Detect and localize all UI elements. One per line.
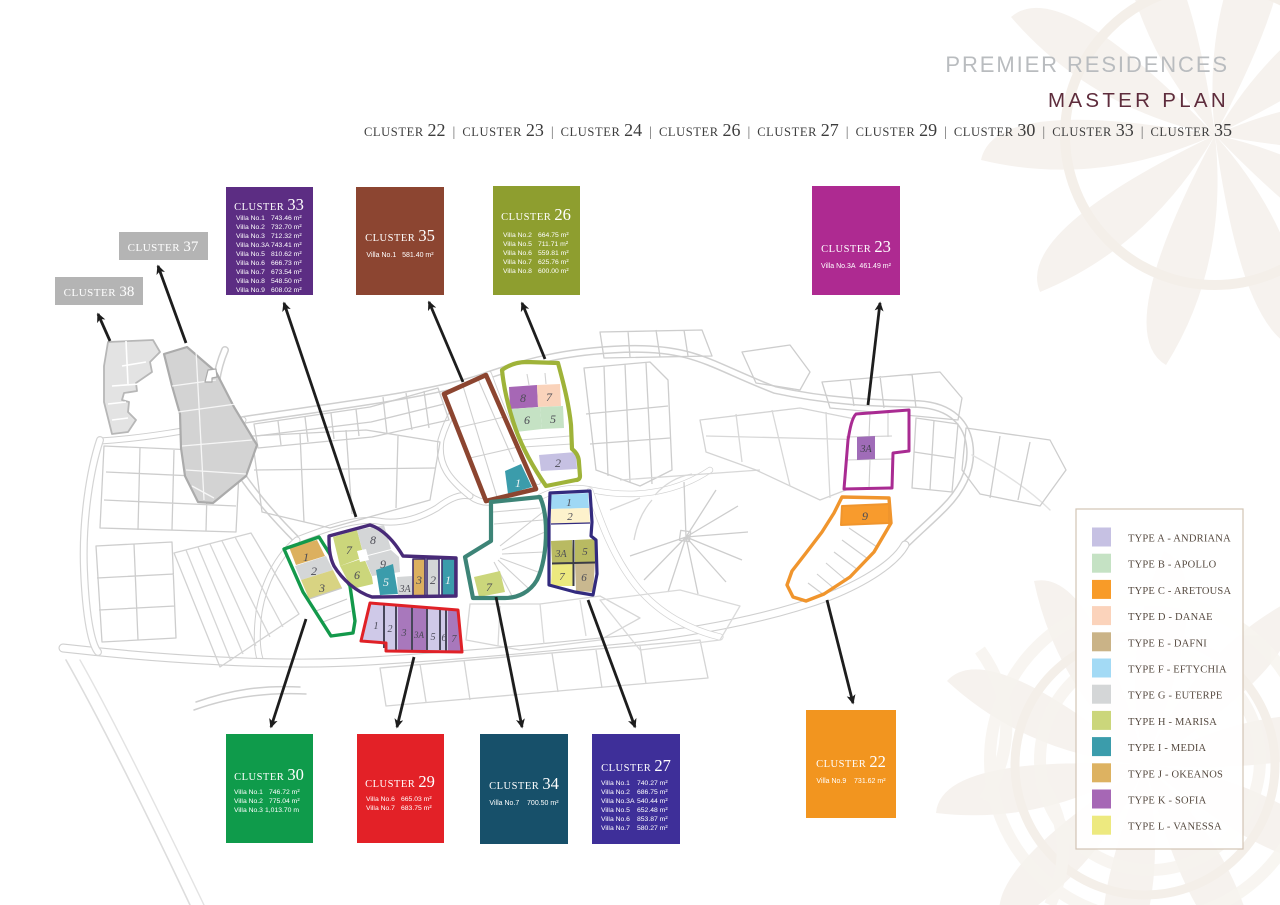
svg-text:5: 5 (582, 546, 588, 558)
svg-text:TYPE H - MARISA: TYPE H - MARISA (1128, 717, 1217, 728)
svg-text:Villa No.5: Villa No.5 (503, 241, 532, 248)
svg-text:TYPE B - APOLLO: TYPE B - APOLLO (1128, 560, 1217, 571)
svg-text:625.76 m²: 625.76 m² (538, 259, 569, 266)
svg-text:666.73 m²: 666.73 m² (271, 260, 302, 267)
svg-text:Villa No.6: Villa No.6 (503, 250, 532, 257)
svg-text:Villa No.7: Villa No.7 (503, 259, 532, 266)
svg-text:TYPE L - VANESSA: TYPE L - VANESSA (1128, 822, 1222, 833)
svg-text:Villa No.1: Villa No.1 (601, 780, 630, 787)
svg-text:TYPE G - EUTERPE: TYPE G - EUTERPE (1128, 691, 1223, 702)
svg-text:652.48 m²: 652.48 m² (637, 807, 668, 814)
svg-text:7: 7 (346, 543, 353, 557)
svg-text:600.00 m²: 600.00 m² (538, 268, 569, 275)
svg-text:TYPE E - DAFNI: TYPE E - DAFNI (1128, 638, 1207, 649)
svg-text:CLUSTER 38: CLUSTER 38 (64, 284, 135, 300)
svg-text:9: 9 (862, 509, 868, 523)
svg-text:Villa No.1: Villa No.1 (234, 789, 263, 796)
svg-text:Villa No.6: Villa No.6 (366, 796, 395, 803)
svg-text:3A: 3A (554, 549, 567, 560)
svg-text:Villa No.3: Villa No.3 (234, 807, 263, 814)
svg-text:2: 2 (430, 573, 436, 587)
svg-text:6: 6 (524, 413, 530, 427)
svg-text:746.72 m²: 746.72 m² (269, 789, 300, 796)
svg-text:Villa No.3A: Villa No.3A (601, 798, 635, 805)
svg-text:559.81 m²: 559.81 m² (538, 250, 569, 257)
svg-text:3A: 3A (398, 584, 411, 595)
svg-text:TYPE C - ARETOUSA: TYPE C - ARETOUSA (1128, 586, 1231, 597)
svg-text:Villa No.2: Villa No.2 (236, 224, 265, 231)
svg-text:Villa No.6: Villa No.6 (601, 816, 630, 823)
svg-text:3A: 3A (413, 630, 425, 640)
svg-text:7: 7 (559, 571, 565, 583)
svg-text:Villa No.1: Villa No.1 (236, 215, 265, 222)
svg-text:608.02 m²: 608.02 m² (271, 287, 302, 294)
svg-text:Villa No.2: Villa No.2 (234, 798, 263, 805)
svg-text:1,013.70 m: 1,013.70 m (265, 807, 299, 814)
svg-text:CLUSTER 37: CLUSTER 37 (128, 239, 199, 255)
svg-text:Villa No.1 581.40 m²: Villa No.1 581.40 m² (366, 252, 434, 259)
svg-text:Villa No.5: Villa No.5 (236, 251, 265, 258)
svg-text:Villa No.9 731.62 m²: Villa No.9 731.62 m² (816, 778, 886, 785)
svg-text:5: 5 (431, 632, 436, 643)
svg-text:8: 8 (520, 391, 526, 405)
svg-text:Villa No.8: Villa No.8 (503, 268, 532, 275)
svg-text:6: 6 (442, 633, 447, 644)
svg-text:MASTER PLAN: MASTER PLAN (1048, 89, 1229, 112)
svg-text:TYPE D - DANAE: TYPE D - DANAE (1128, 612, 1213, 623)
svg-text:3A: 3A (859, 444, 872, 455)
svg-text:2: 2 (388, 624, 393, 635)
svg-text:683.75 m²: 683.75 m² (401, 805, 432, 812)
svg-text:PREMIER RESIDENCES: PREMIER RESIDENCES (945, 52, 1229, 77)
svg-text:TYPE I - MEDIA: TYPE I - MEDIA (1128, 743, 1207, 754)
svg-text:Villa No.9: Villa No.9 (236, 287, 265, 294)
svg-text:740.27 m²: 740.27 m² (637, 780, 668, 787)
svg-text:743.46 m²: 743.46 m² (271, 215, 302, 222)
svg-text:664.75 m²: 664.75 m² (538, 232, 569, 239)
svg-text:1: 1 (374, 621, 379, 632)
svg-text:Villa No.6: Villa No.6 (236, 260, 265, 267)
svg-text:Villa No.7: Villa No.7 (366, 805, 395, 812)
svg-text:TYPE A - ANDRIANA: TYPE A - ANDRIANA (1128, 534, 1231, 545)
svg-text:9: 9 (380, 557, 386, 571)
svg-text:Villa No.3A: Villa No.3A (236, 242, 270, 249)
svg-text:673.54 m²: 673.54 m² (271, 269, 302, 276)
svg-text:TYPE J - OKEANOS: TYPE J - OKEANOS (1128, 769, 1223, 780)
svg-text:6: 6 (354, 568, 360, 582)
svg-text:3: 3 (415, 573, 422, 587)
svg-text:1: 1 (515, 476, 521, 490)
svg-text:Villa No.3A 461.49 m²: Villa No.3A 461.49 m² (821, 263, 892, 270)
svg-text:2: 2 (555, 456, 561, 470)
svg-text:665.03 m²: 665.03 m² (401, 796, 432, 803)
svg-text:732.70 m²: 732.70 m² (271, 224, 302, 231)
svg-text:1: 1 (566, 497, 572, 509)
svg-text:1: 1 (303, 550, 309, 564)
svg-text:Villa No.7: Villa No.7 (236, 269, 265, 276)
svg-text:Villa No.7 700.50 m²: Villa No.7 700.50 m² (489, 800, 559, 807)
svg-text:775.04 m²: 775.04 m² (269, 798, 300, 805)
svg-text:TYPE F - EFTYCHIA: TYPE F - EFTYCHIA (1128, 665, 1227, 676)
svg-text:2: 2 (567, 511, 573, 523)
svg-text:743.41 m²: 743.41 m² (271, 242, 302, 249)
svg-text:Villa No.3: Villa No.3 (236, 233, 265, 240)
svg-text:1: 1 (445, 573, 451, 587)
svg-text:2: 2 (311, 564, 317, 578)
svg-text:6: 6 (581, 572, 587, 584)
svg-text:3: 3 (401, 628, 407, 639)
svg-text:3: 3 (318, 581, 325, 595)
svg-text:686.75 m²: 686.75 m² (637, 789, 668, 796)
svg-text:Villa No.7: Villa No.7 (601, 825, 630, 832)
svg-text:8: 8 (370, 533, 376, 547)
svg-text:Villa No.2: Villa No.2 (601, 789, 630, 796)
svg-text:712.32 m²: 712.32 m² (271, 233, 302, 240)
svg-text:5: 5 (383, 575, 389, 589)
svg-text:548.50 m²: 548.50 m² (271, 278, 302, 285)
svg-text:711.71 m²: 711.71 m² (538, 241, 569, 248)
svg-text:Villa No.2: Villa No.2 (503, 232, 532, 239)
svg-text:TYPE K - SOFIA: TYPE K - SOFIA (1128, 796, 1207, 807)
svg-text:810.62 m²: 810.62 m² (271, 251, 302, 258)
svg-text:540.44 m²: 540.44 m² (637, 798, 668, 805)
svg-text:Villa No.5: Villa No.5 (601, 807, 630, 814)
svg-text:580.27 m²: 580.27 m² (637, 825, 668, 832)
svg-text:7: 7 (486, 580, 493, 594)
svg-text:Villa No.8: Villa No.8 (236, 278, 265, 285)
svg-text:7: 7 (546, 390, 553, 404)
svg-text:853.87 m²: 853.87 m² (637, 816, 668, 823)
svg-text:5: 5 (550, 412, 556, 426)
